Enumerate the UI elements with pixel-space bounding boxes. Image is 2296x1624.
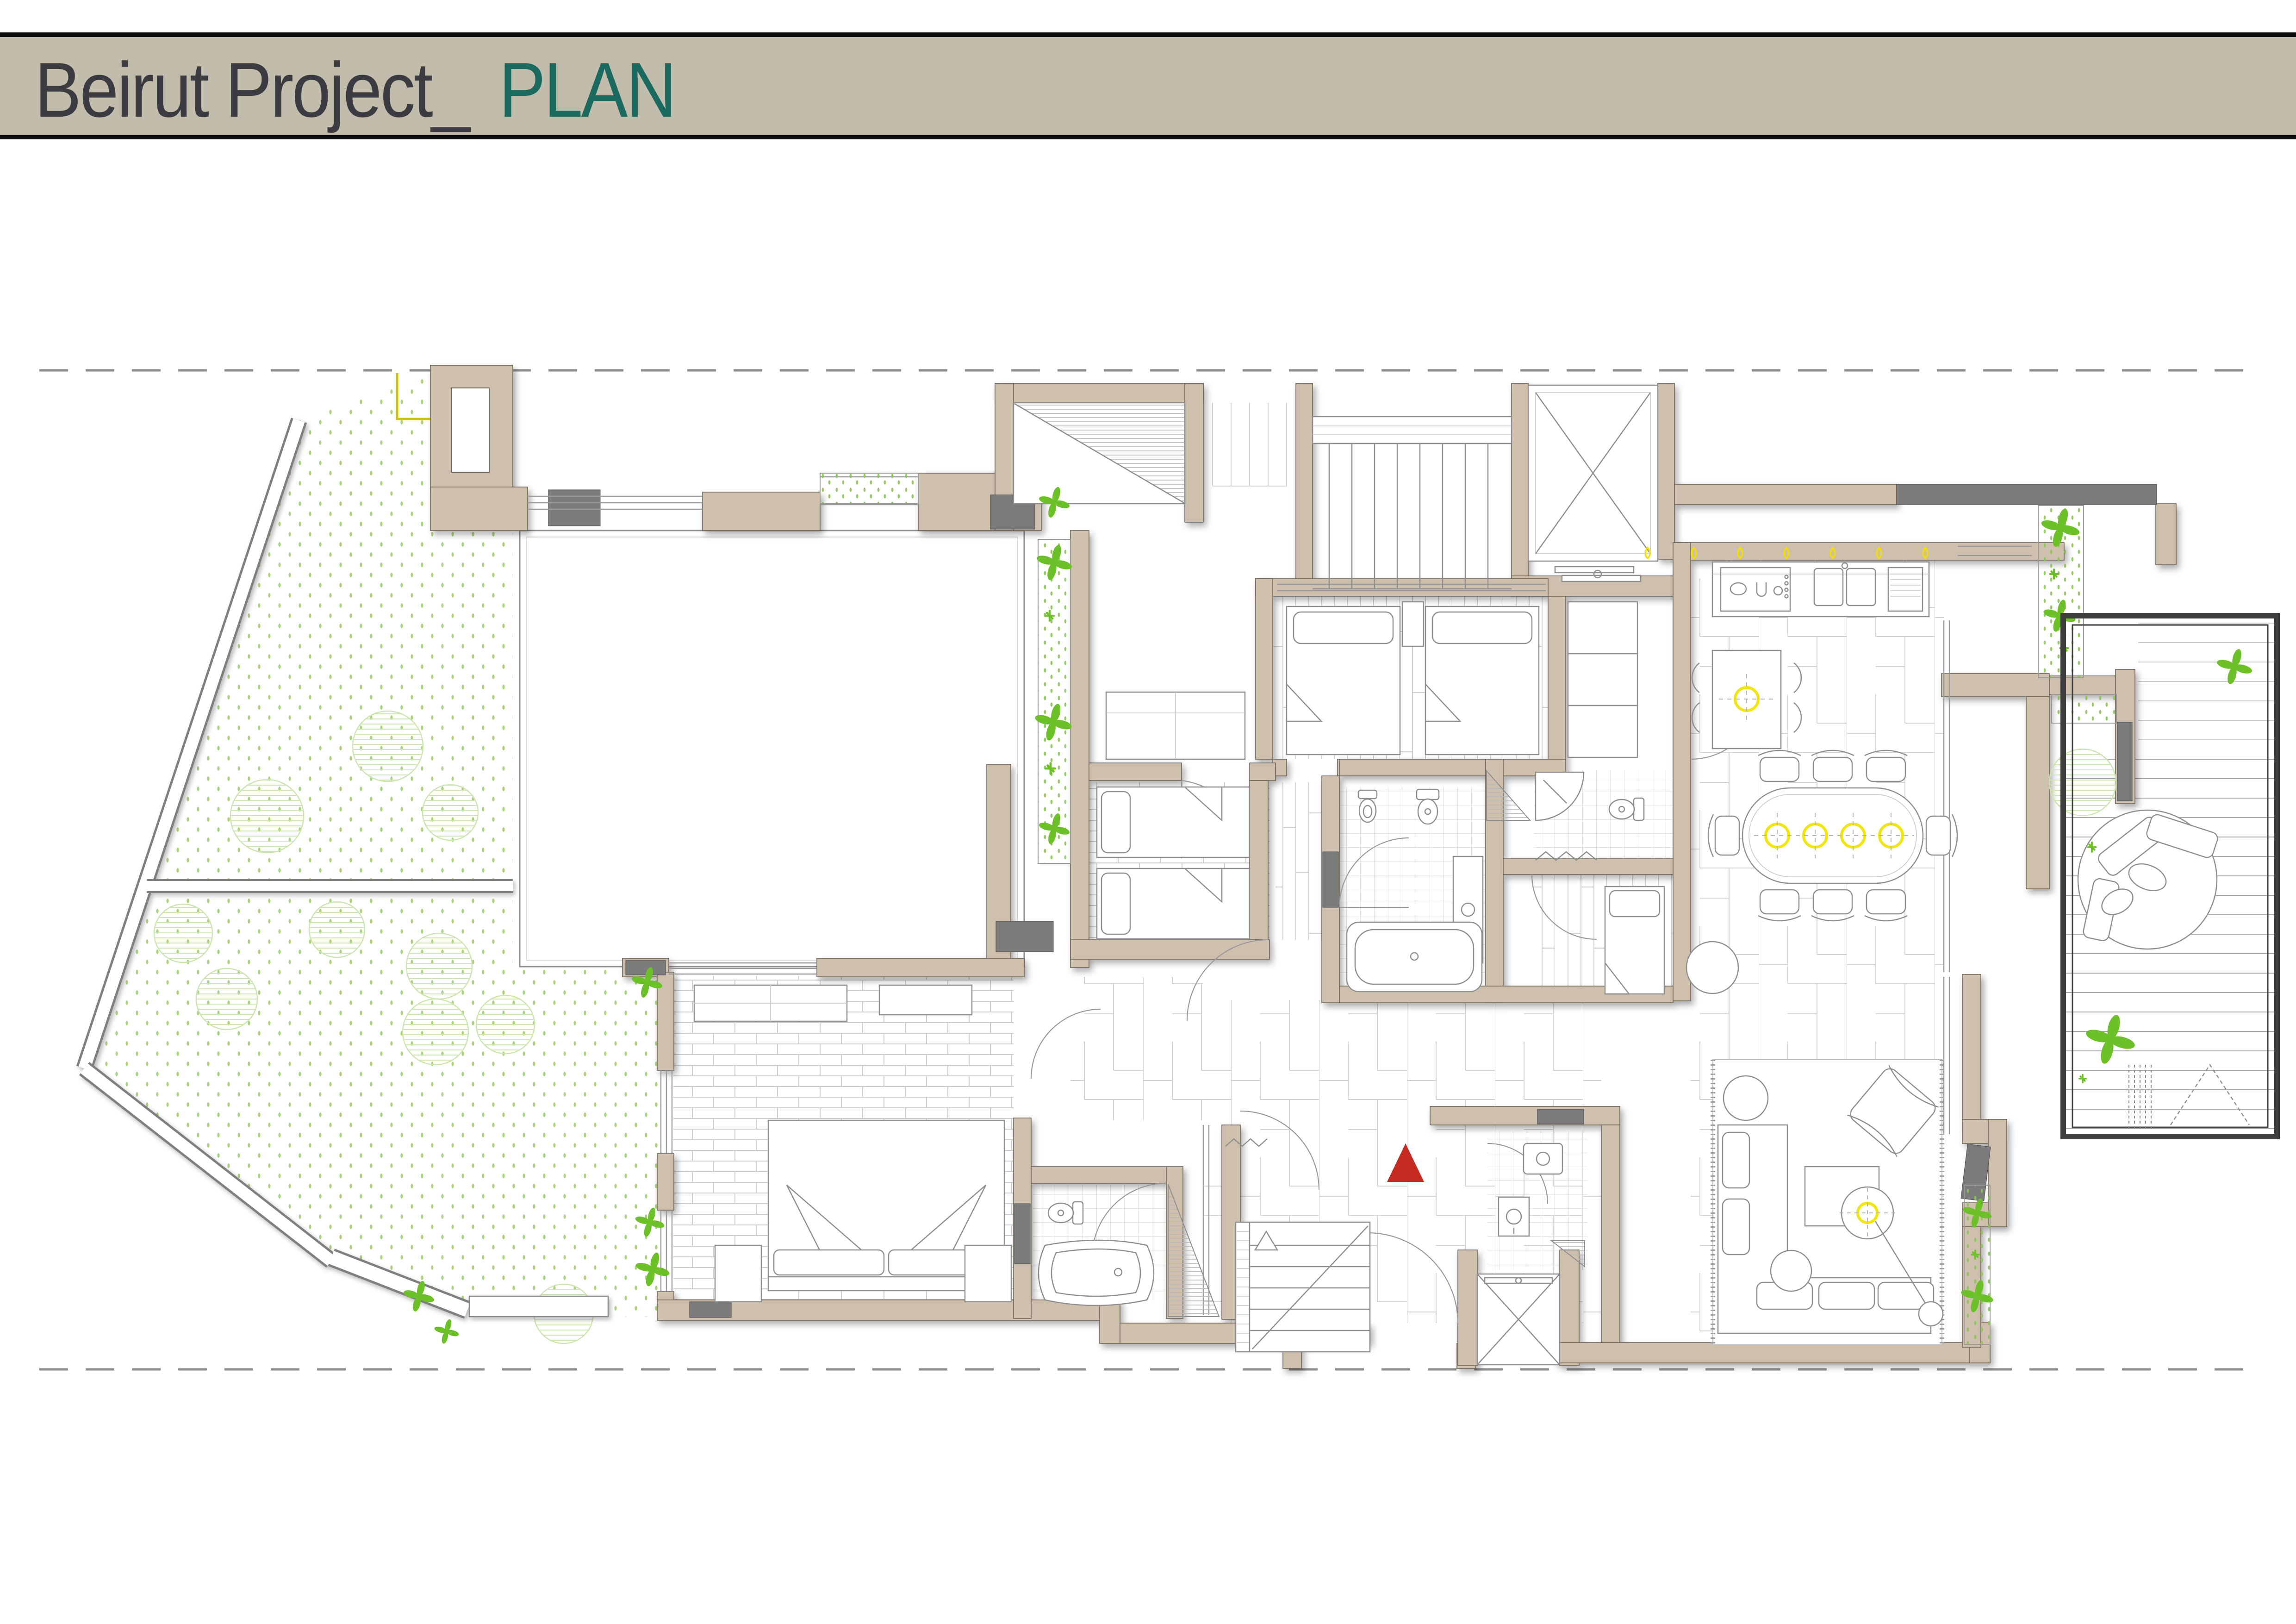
second-bedroom bbox=[1097, 692, 1250, 939]
tower-core bbox=[451, 388, 489, 472]
twin-bed-1 bbox=[1287, 606, 1400, 755]
sofa-cushion-round bbox=[1771, 1250, 1811, 1291]
side-table bbox=[1686, 942, 1738, 993]
master-tub bbox=[1039, 1240, 1154, 1305]
title-prefix: Beirut Project_ bbox=[35, 46, 471, 133]
patio-court bbox=[520, 531, 1024, 967]
twin-nightstand bbox=[1402, 602, 1424, 646]
page-title: Beirut Project_ PLAN bbox=[35, 46, 675, 133]
bench-right bbox=[965, 1245, 1011, 1302]
elevator-bottom bbox=[1477, 1274, 1560, 1365]
twin-bed-2 bbox=[1425, 606, 1539, 755]
kitchen-cabinets bbox=[1568, 602, 1637, 757]
hatch-room bbox=[1014, 403, 1185, 504]
bed2-b bbox=[1097, 868, 1250, 939]
bed2-a bbox=[1097, 787, 1250, 857]
header-bottom-rule bbox=[0, 135, 2296, 139]
title-accent: PLAN bbox=[499, 46, 675, 133]
planter-right bbox=[2038, 506, 2116, 816]
bench-left bbox=[715, 1245, 761, 1302]
stair-upper-flight bbox=[1213, 403, 1287, 486]
shear-wall-top-right bbox=[1897, 484, 2157, 505]
stair-bottom bbox=[1236, 1222, 1370, 1352]
living-room bbox=[1713, 1060, 1943, 1345]
planter-north bbox=[820, 473, 918, 504]
master-corridor-floor bbox=[1070, 977, 1203, 1120]
plan-canvas: Beirut Project_ PLAN bbox=[0, 0, 2296, 1624]
header-bar: Beirut Project_ PLAN bbox=[0, 32, 2296, 139]
floor-plan-sheet: Beirut Project_ PLAN bbox=[0, 0, 2296, 1624]
elevator-top bbox=[1528, 385, 1658, 581]
stair-top bbox=[1313, 417, 1512, 589]
terrace-deck-upper bbox=[2138, 609, 2277, 741]
bathtub bbox=[1347, 922, 1482, 992]
maid-room bbox=[1605, 887, 1664, 994]
planter-living-east bbox=[1960, 1185, 1994, 1344]
pouf bbox=[1724, 1076, 1768, 1120]
header-top-rule bbox=[0, 32, 2296, 37]
shaft-wedge bbox=[1487, 771, 1530, 820]
console bbox=[879, 985, 972, 1015]
planter-patio-east bbox=[1034, 539, 1073, 863]
